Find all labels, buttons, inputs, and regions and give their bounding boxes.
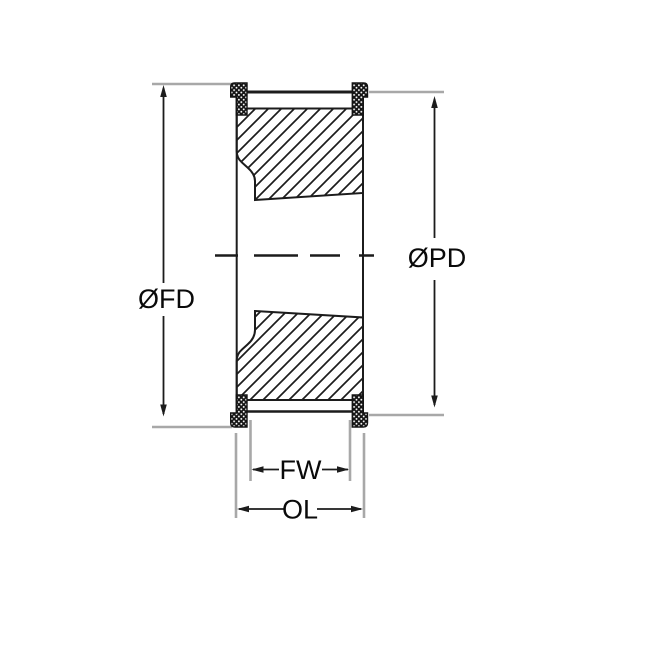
upper-hatched-section [237, 109, 363, 201]
pulley-drawing-page: ØFD ØPD FW OL [0, 0, 670, 670]
label-overall-length: OL [282, 495, 318, 525]
label-face-width: FW [280, 455, 322, 485]
label-flange-diameter: ØFD [138, 284, 195, 314]
lower-hatched-section [237, 311, 363, 400]
label-pitch-diameter: ØPD [408, 243, 467, 273]
pulley-cross-section-diagram: ØFD ØPD FW OL [0, 0, 670, 670]
